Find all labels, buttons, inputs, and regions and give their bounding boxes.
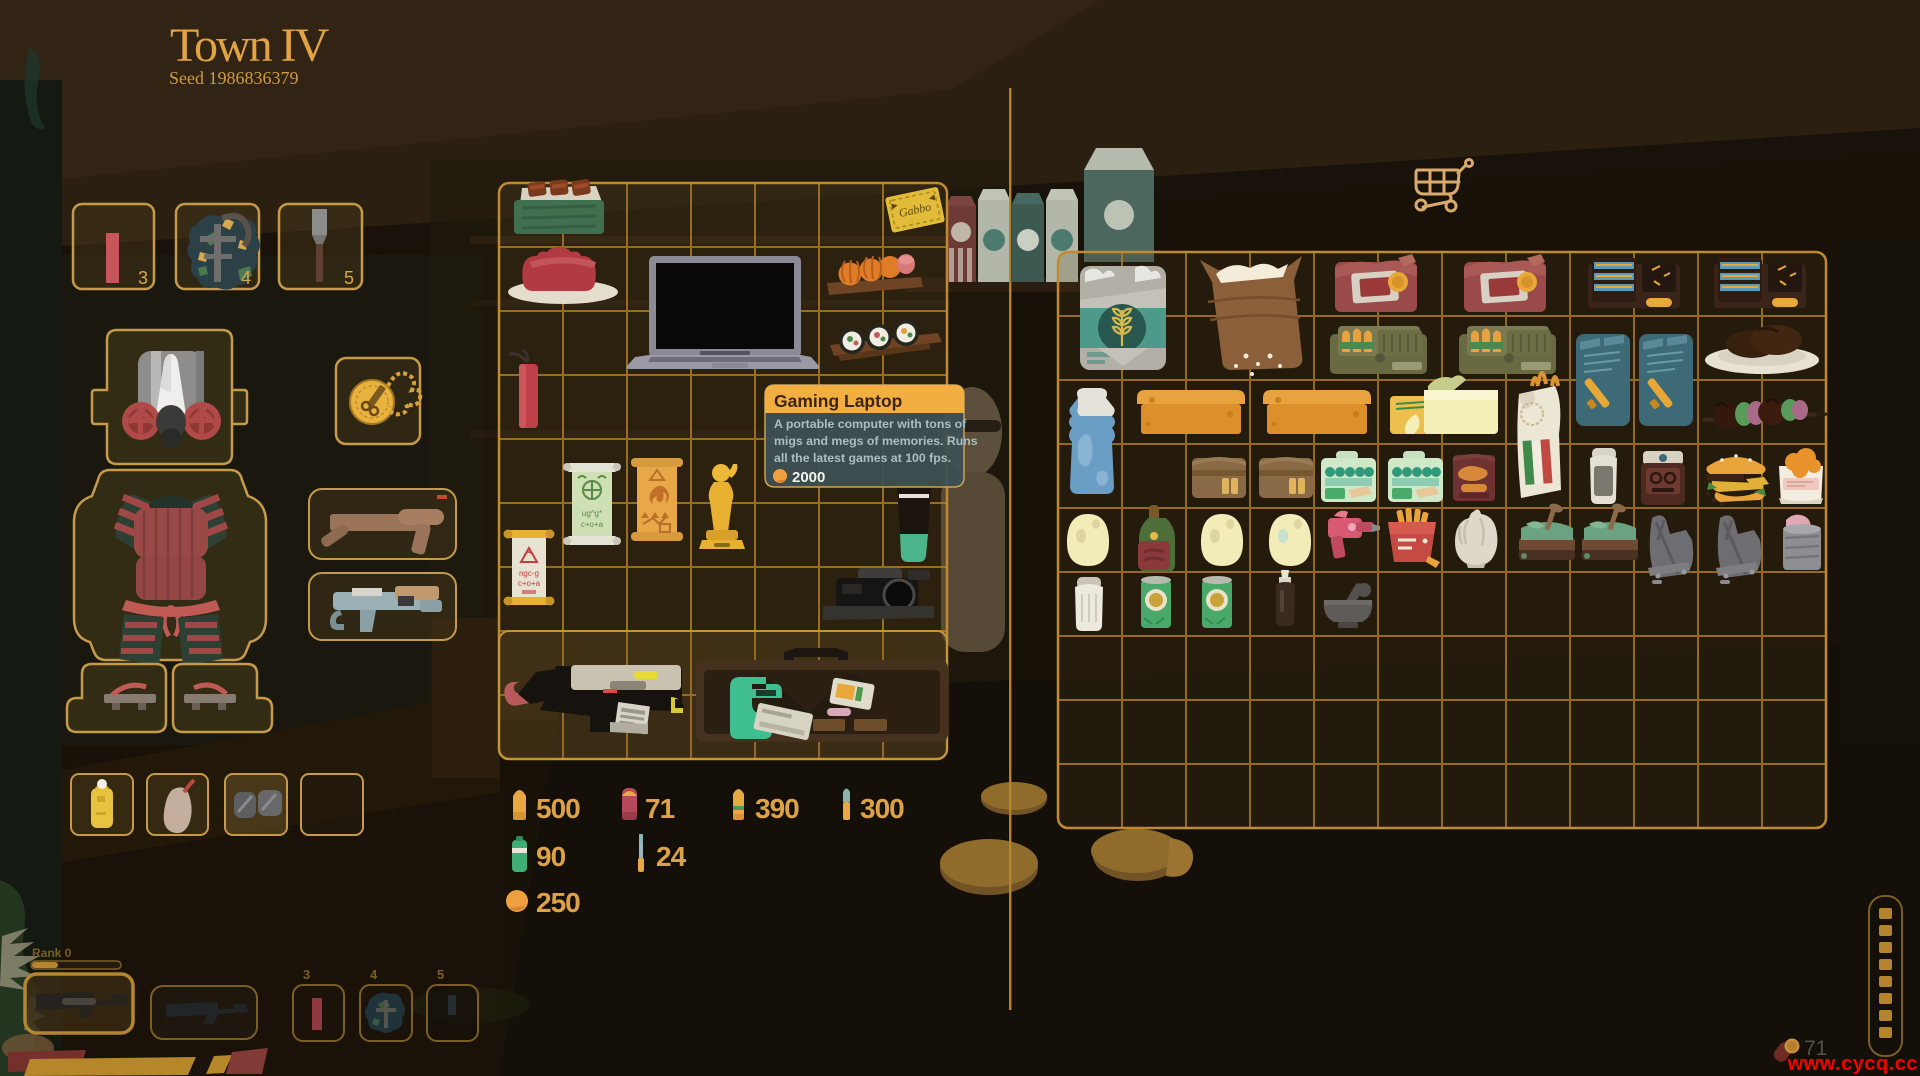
svg-text:3: 3 bbox=[303, 967, 310, 982]
svg-text:5: 5 bbox=[344, 268, 354, 288]
svg-text:2000: 2000 bbox=[792, 469, 825, 486]
svg-text:250: 250 bbox=[536, 887, 580, 918]
svg-text:Gaming Laptop: Gaming Laptop bbox=[774, 391, 902, 411]
svg-text:Rank 0: Rank 0 bbox=[32, 946, 72, 960]
svg-text:c+o+a: c+o+a bbox=[518, 579, 541, 588]
svg-text:c+o+a: c+o+a bbox=[581, 520, 604, 529]
svg-text:500: 500 bbox=[536, 793, 580, 824]
svg-text:4: 4 bbox=[241, 268, 251, 288]
svg-text:ngc-g: ngc-g bbox=[519, 569, 539, 578]
svg-text:A portable computer with tons: A portable computer with tons of bbox=[774, 417, 967, 431]
svg-text:71: 71 bbox=[645, 793, 675, 824]
svg-text:3: 3 bbox=[138, 268, 148, 288]
svg-text:24: 24 bbox=[656, 841, 687, 872]
svg-text:Town IV: Town IV bbox=[170, 19, 330, 72]
svg-text:300: 300 bbox=[860, 793, 904, 824]
svg-text:all the latest games at 100 fp: all the latest games at 100 fps. bbox=[774, 451, 951, 465]
svg-text:www.cycq.cc: www.cycq.cc bbox=[1787, 1053, 1918, 1075]
svg-text:390: 390 bbox=[755, 793, 799, 824]
svg-text:90: 90 bbox=[536, 841, 566, 872]
svg-text:4: 4 bbox=[370, 967, 378, 982]
svg-text:ug^g*: ug^g* bbox=[582, 509, 602, 518]
svg-text:Seed 1986836379: Seed 1986836379 bbox=[169, 68, 299, 88]
svg-text:5: 5 bbox=[437, 967, 444, 982]
svg-text:migs and megs of memories. Run: migs and megs of memories. Runs bbox=[774, 434, 978, 448]
